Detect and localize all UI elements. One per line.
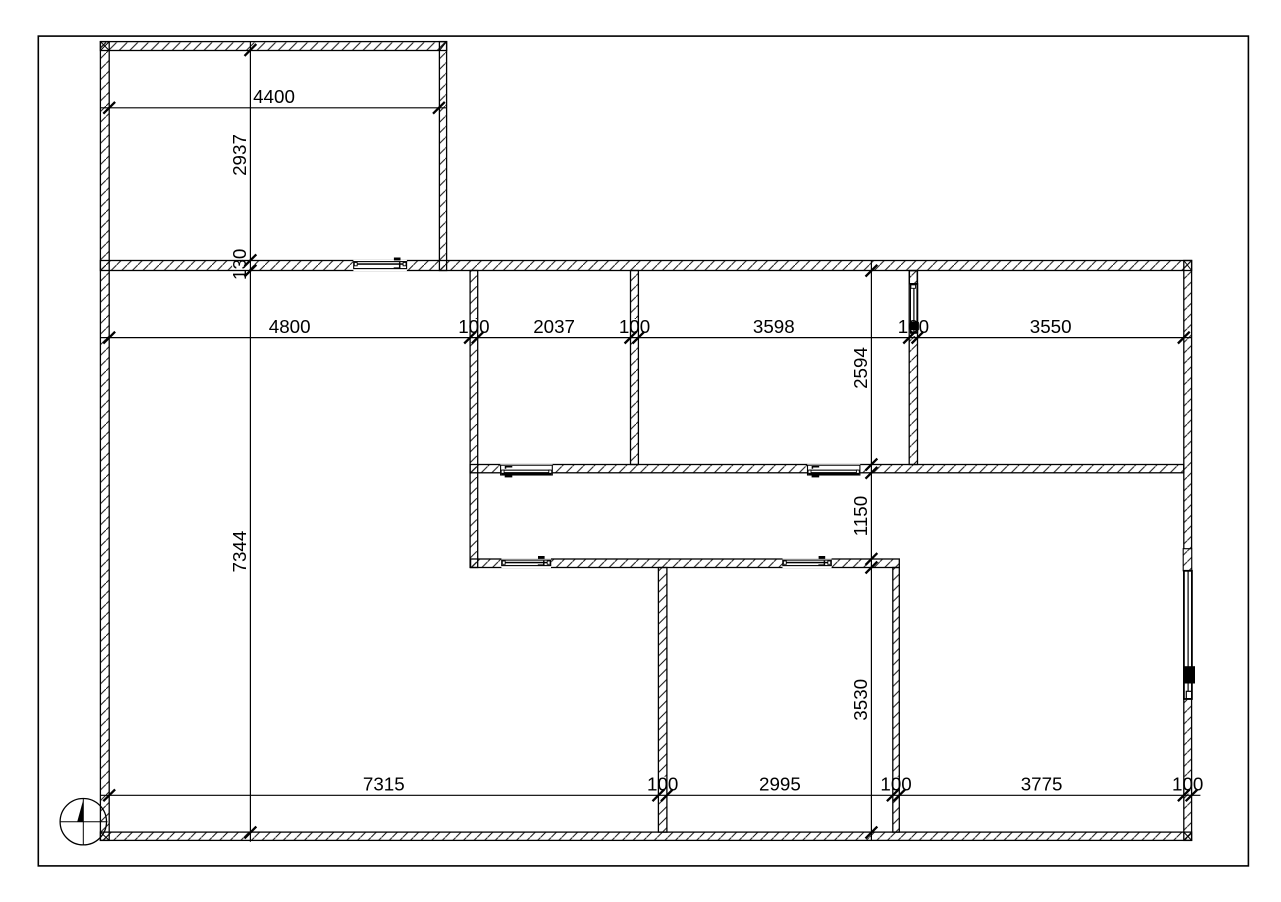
svg-text:2995: 2995: [759, 774, 801, 795]
svg-text:3598: 3598: [753, 316, 795, 337]
svg-text:2937: 2937: [229, 134, 250, 176]
svg-text:2037: 2037: [533, 316, 575, 337]
svg-text:4800: 4800: [269, 316, 311, 337]
svg-text:3550: 3550: [1030, 316, 1072, 337]
svg-text:1150: 1150: [850, 496, 871, 536]
svg-text:3530: 3530: [850, 679, 871, 721]
svg-text:7344: 7344: [229, 531, 250, 573]
svg-text:4400: 4400: [253, 86, 295, 107]
svg-text:3775: 3775: [1021, 774, 1063, 795]
svg-text:7315: 7315: [363, 774, 405, 795]
svg-text:2594: 2594: [850, 347, 871, 389]
